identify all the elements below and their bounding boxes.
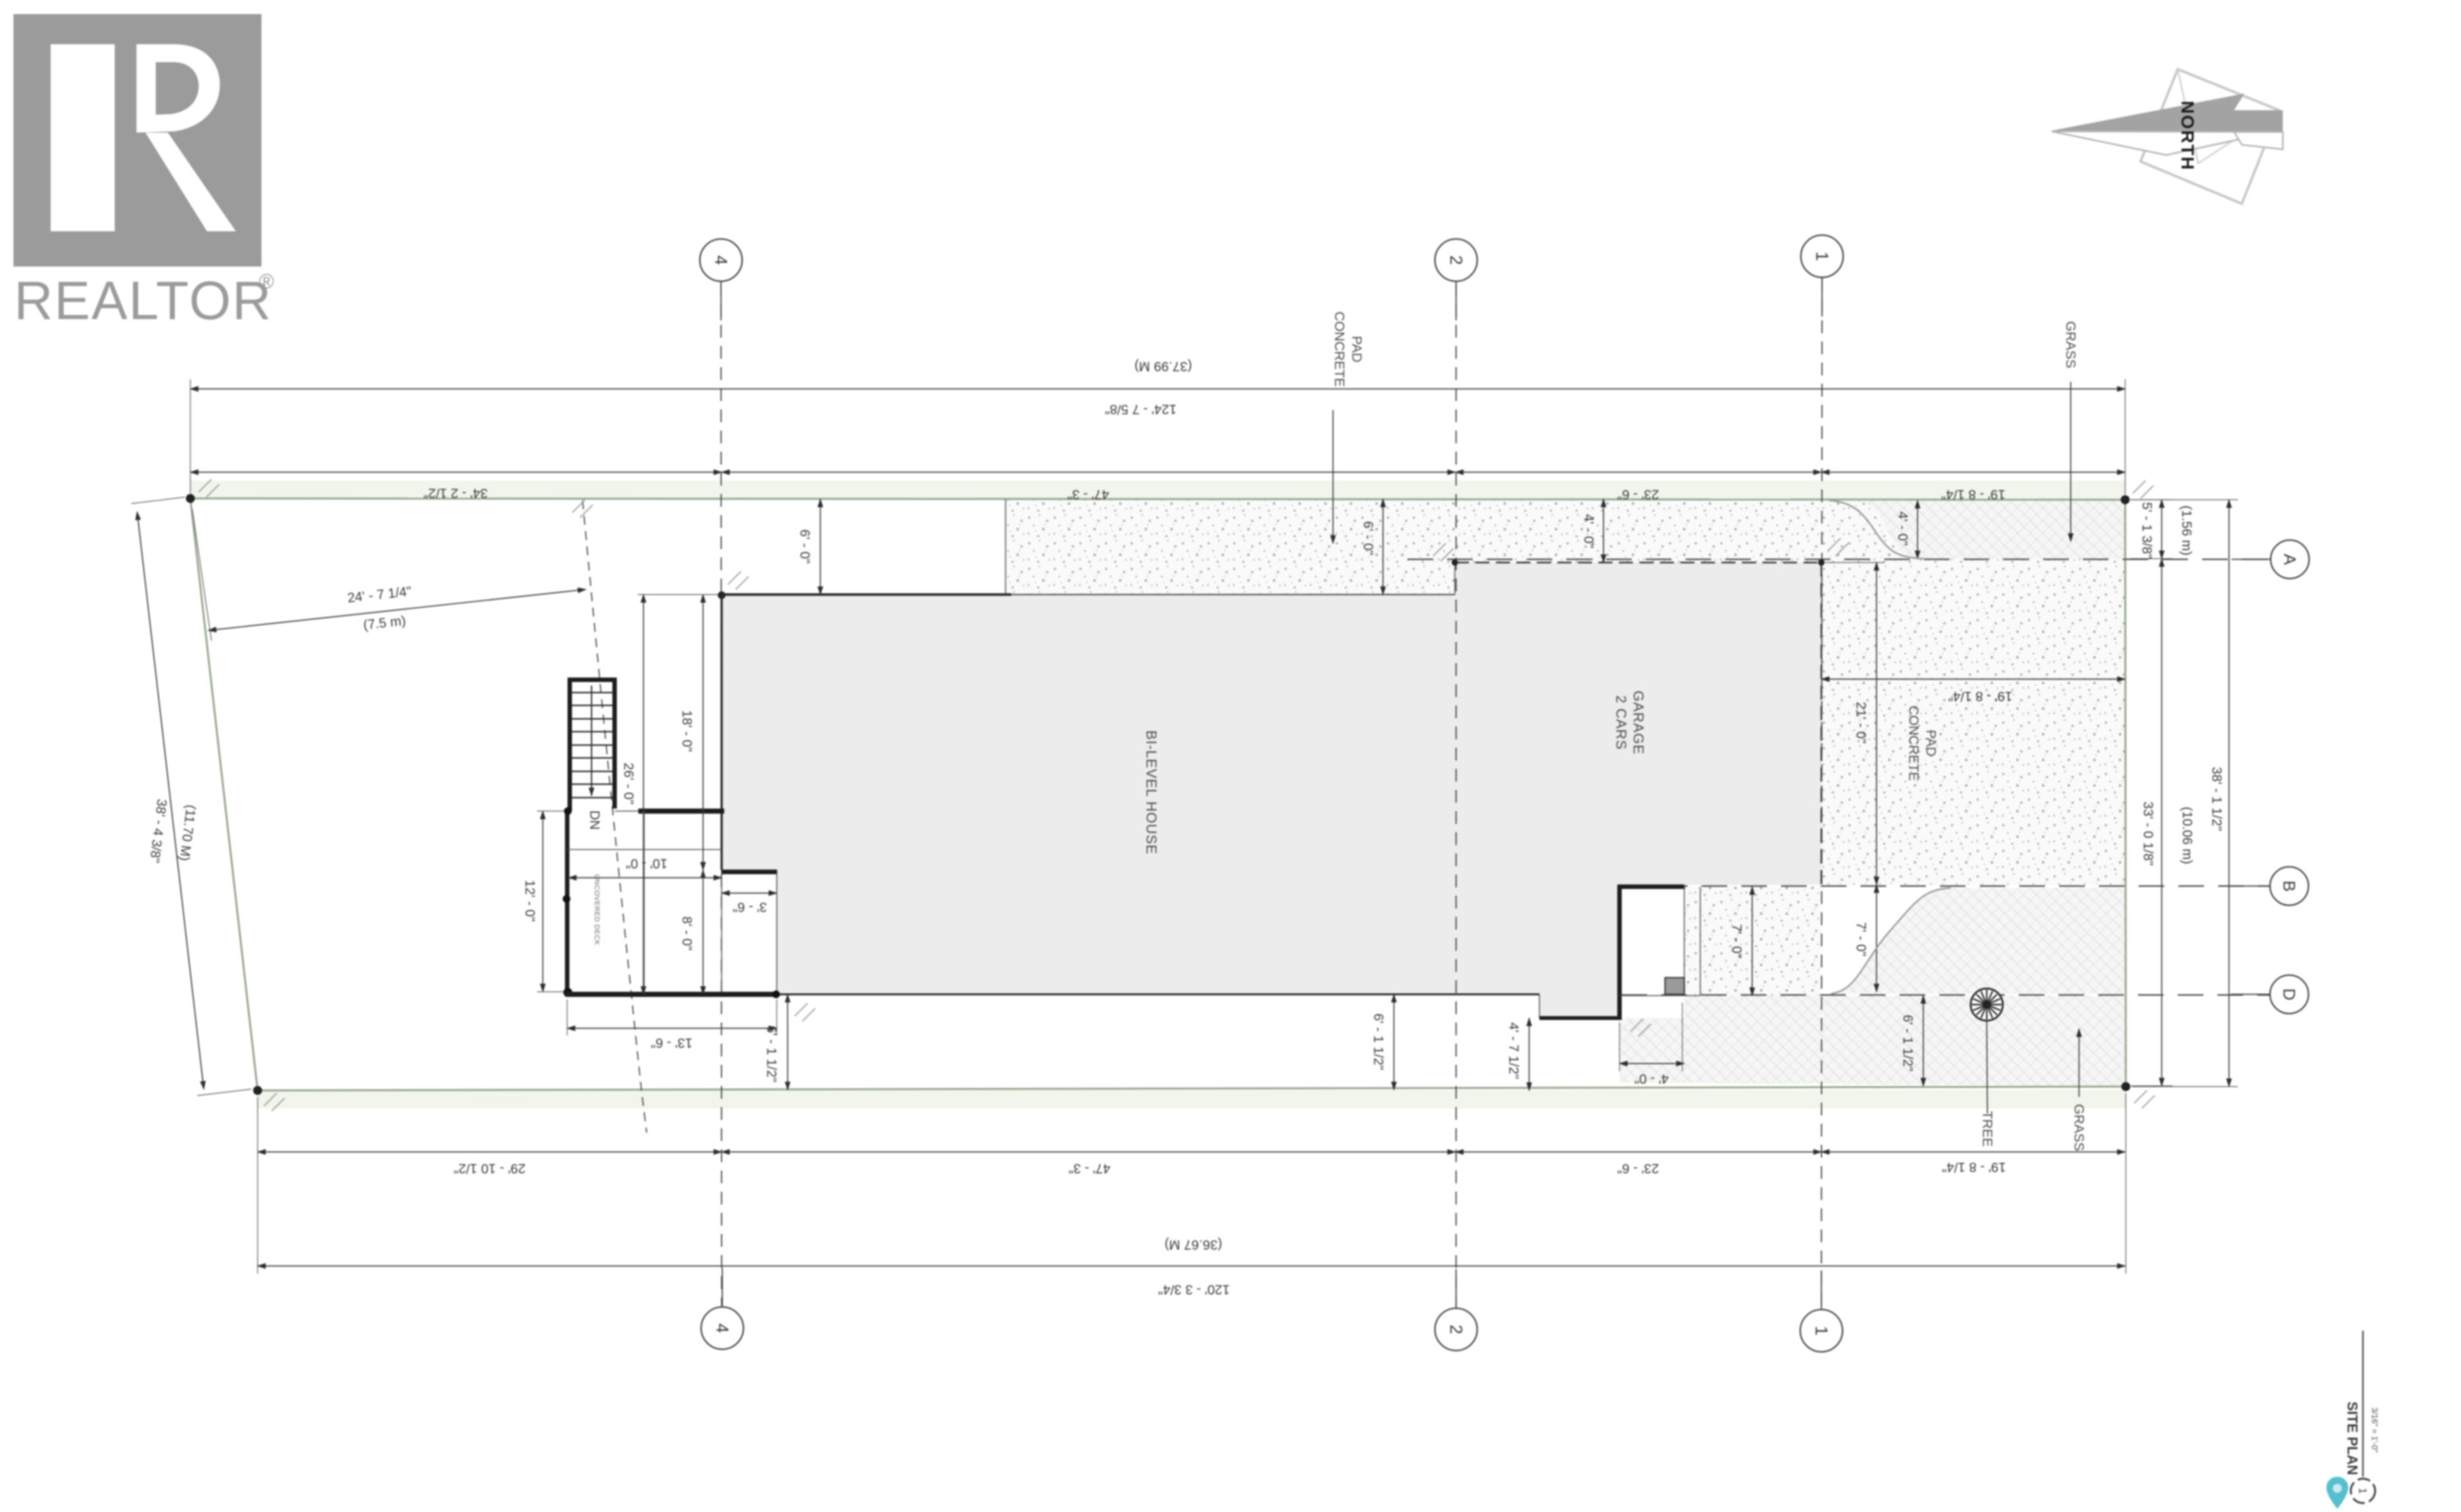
svg-text:GRASS: GRASS [2071, 1104, 2086, 1151]
svg-text:DN: DN [587, 810, 602, 830]
svg-text:34' - 2 1/2": 34' - 2 1/2" [424, 486, 488, 500]
svg-text:CONCRETE: CONCRETE [1332, 311, 1347, 387]
svg-text:GRASS: GRASS [2063, 321, 2078, 368]
svg-text:21' - 0": 21' - 0" [1853, 702, 1868, 743]
svg-text:7' - 0": 7' - 0" [1729, 924, 1744, 958]
svg-text:3' - 6": 3' - 6" [733, 900, 766, 914]
svg-text:47' - 3": 47' - 3" [1068, 1161, 1110, 1176]
svg-text:10' - 0": 10' - 0" [626, 856, 667, 871]
svg-text:4' - 7 1/2": 4' - 7 1/2" [1506, 1023, 1521, 1080]
svg-text:2 CARS: 2 CARS [1613, 695, 1629, 750]
svg-text:5' - 1 3/8": 5' - 1 3/8" [2139, 502, 2154, 559]
svg-text:4: 4 [711, 255, 731, 265]
svg-text:4: 4 [713, 1323, 732, 1333]
svg-text:1: 1 [2357, 1488, 2369, 1493]
svg-text:23' - 6": 23' - 6" [1617, 487, 1659, 502]
svg-text:124' - 7 5/8": 124' - 7 5/8" [1105, 402, 1177, 416]
svg-text:12' - 0": 12' - 0" [522, 880, 537, 921]
svg-text:4' - 0": 4' - 0" [1634, 1071, 1668, 1086]
svg-text:6' - 1 1/2": 6' - 1 1/2" [764, 1026, 779, 1083]
svg-text:6' - 1 1/2": 6' - 1 1/2" [1371, 1014, 1386, 1071]
svg-text:26' - 0": 26' - 0" [621, 762, 636, 804]
svg-text:19' - 8 1/4": 19' - 8 1/4" [1942, 1160, 2006, 1174]
svg-text:(1.56 m): (1.56 m) [2179, 505, 2194, 555]
svg-text:SITE PLAN: SITE PLAN [2344, 1402, 2360, 1475]
svg-text:A: A [2280, 554, 2299, 565]
svg-text:REALTOR: REALTOR [14, 270, 272, 331]
svg-text:GARAGE: GARAGE [1630, 691, 1646, 755]
svg-text:(36.67 M): (36.67 M) [1164, 1237, 1222, 1252]
svg-text:1: 1 [1812, 1326, 1831, 1335]
svg-text:CONCRETE: CONCRETE [1906, 705, 1921, 781]
svg-text:6' - 0": 6' - 0" [1361, 521, 1375, 555]
svg-text:33' - 0 1/8": 33' - 0 1/8" [2141, 801, 2155, 866]
svg-text:4' - 0": 4' - 0" [1581, 514, 1596, 548]
svg-text:120' - 3 3/4": 120' - 3 3/4" [1158, 1282, 1230, 1297]
svg-text:(37.99 M): (37.99 M) [1134, 359, 1192, 374]
svg-text:BI-LEVEL HOUSE: BI-LEVEL HOUSE [1143, 730, 1159, 855]
svg-text:TREE: TREE [1980, 1111, 1994, 1147]
svg-text:19' - 8 1/4": 19' - 8 1/4" [1948, 689, 2012, 703]
svg-text:PAD: PAD [1349, 336, 1364, 363]
svg-text:38' - 1 1/2": 38' - 1 1/2" [2209, 767, 2224, 831]
svg-text:4' - 0": 4' - 0" [1895, 511, 1910, 545]
svg-text:8' - 0": 8' - 0" [679, 916, 694, 950]
svg-text:23' - 6": 23' - 6" [1617, 1161, 1659, 1176]
svg-text:47' - 3": 47' - 3" [1067, 487, 1109, 502]
svg-text:®: ® [259, 270, 274, 293]
svg-text:(10.06 m): (10.06 m) [2180, 807, 2194, 864]
svg-text:D: D [2280, 989, 2299, 1001]
svg-text:NORTH: NORTH [2178, 101, 2198, 171]
svg-text:2: 2 [1446, 255, 1466, 265]
svg-text:2: 2 [1446, 1324, 1466, 1334]
svg-text:18' - 0": 18' - 0" [679, 710, 694, 752]
svg-text:UNCOVERED DECK: UNCOVERED DECK [593, 875, 601, 946]
svg-text:13' - 6": 13' - 6" [650, 1035, 692, 1050]
svg-text:6' - 0": 6' - 0" [797, 529, 812, 563]
svg-text:19' - 8 1/4": 19' - 8 1/4" [1941, 487, 2005, 502]
svg-text:PAD: PAD [1923, 730, 1938, 757]
svg-text:1: 1 [1812, 251, 1832, 261]
svg-text:B: B [2280, 880, 2299, 891]
svg-text:6' - 1 1/2": 6' - 1 1/2" [1900, 1015, 1915, 1072]
svg-text:29' - 10 1/2": 29' - 10 1/2" [454, 1161, 526, 1176]
svg-text:3/16" = 1'-0": 3/16" = 1'-0" [2370, 1408, 2380, 1453]
svg-text:7' - 0": 7' - 0" [1853, 922, 1868, 956]
